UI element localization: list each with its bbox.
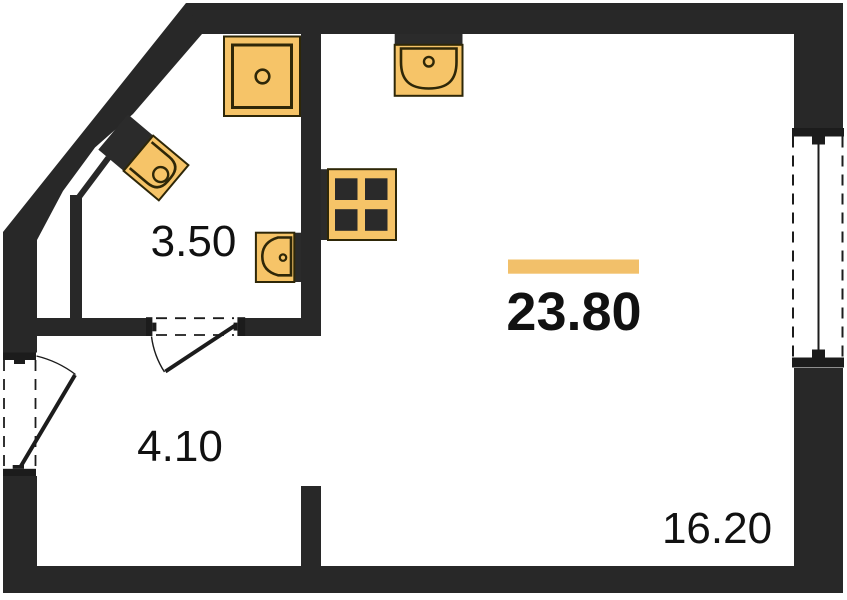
svg-text:3.50: 3.50 [151, 217, 237, 266]
svg-text:4.10: 4.10 [137, 422, 223, 471]
svg-text:23.80: 23.80 [506, 282, 641, 342]
svg-text:16.20: 16.20 [662, 504, 772, 553]
